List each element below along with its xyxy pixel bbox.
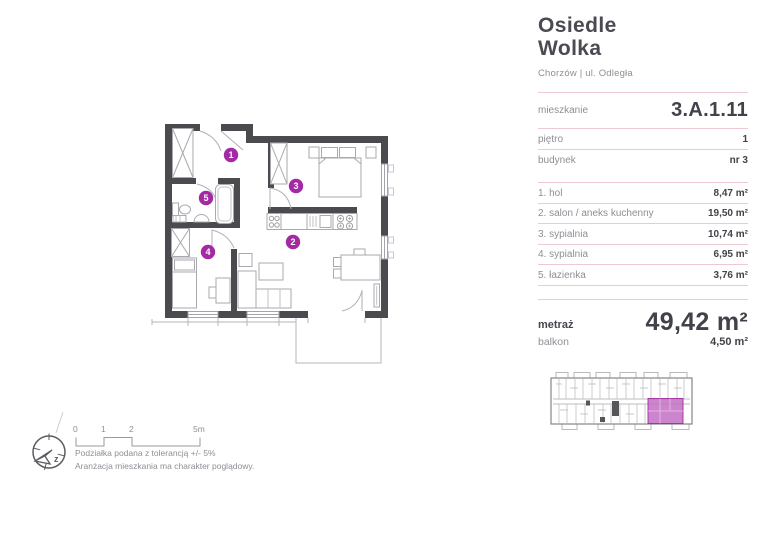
svg-text:4: 4 — [205, 247, 210, 257]
toilet — [173, 203, 179, 216]
building-label: budynek — [538, 155, 576, 166]
summary-divider — [538, 299, 748, 300]
room-row: 1. hol 8,47 m² — [538, 182, 748, 203]
detail-row-apartment: mieszkanie 3.A.1.11 — [538, 92, 748, 128]
balcony-value: 4,50 m² — [710, 336, 748, 348]
apartment-number: 3.A.1.11 — [671, 99, 748, 122]
plan-notes: Podziałka podana z tolerancją +/- 5% Ara… — [75, 447, 254, 473]
balcony — [152, 318, 381, 363]
note-tolerance: Podziałka podana z tolerancją +/- 5% — [75, 447, 254, 460]
tv-unit — [239, 254, 252, 267]
detail-row-floor: piętro 1 — [538, 128, 748, 149]
room-marker-1: 1 — [224, 148, 238, 162]
coffee-table — [259, 263, 283, 280]
svg-text:z: z — [54, 454, 59, 464]
floor-label: piętro — [538, 134, 563, 145]
scale-5m: 5m — [193, 424, 205, 434]
floorplan-page: 1 2 3 4 5 — [0, 0, 768, 539]
project-title: Osiedle Wolka — [538, 14, 748, 60]
room-marker-2: 2 — [286, 235, 300, 249]
room-label: 3. sypialnia — [538, 229, 588, 240]
detail-row-building: budynek nr 3 — [538, 149, 748, 170]
project-address: Chorzów | ul. Odległa — [538, 68, 748, 79]
total-area-label: metraż — [538, 319, 573, 335]
room-label: 4. sypialnia — [538, 249, 588, 260]
compass-icon: z — [33, 412, 65, 470]
room-label: 2. salon / aneks kuchenny — [538, 208, 654, 219]
window-sills — [389, 165, 394, 258]
minimap-highlighted-unit — [648, 399, 683, 424]
room-marker-3: 3 — [289, 179, 303, 193]
room-marker-4: 4 — [201, 245, 215, 259]
note-arrangement: Aranżacja mieszkania ma charakter pogląd… — [75, 460, 254, 473]
total-area-value: 49,42 m² — [646, 309, 748, 335]
info-panel: Osiedle Wolka Chorzów | ul. Odległa mies… — [538, 14, 748, 348]
svg-text:3: 3 — [293, 181, 298, 191]
apartment-details: mieszkanie 3.A.1.11 piętro 1 budynek nr … — [538, 92, 748, 170]
building-value: nr 3 — [730, 155, 748, 166]
room-markers: 1 2 3 4 5 — [199, 148, 303, 259]
rooms-table: 1. hol 8,47 m² 2. salon / aneks kuchenny… — [538, 182, 748, 286]
floor-value: 1 — [742, 134, 748, 145]
double-bed — [319, 158, 361, 197]
svg-text:5: 5 — [203, 193, 208, 203]
nightstand — [309, 147, 319, 158]
area-summary: metraż 49,42 m² balkon 4,50 m² — [538, 309, 748, 348]
room-row: 5. łazienka 3,76 m² — [538, 264, 748, 286]
room-area: 3,76 m² — [714, 270, 748, 281]
room-row: 4. sypialnia 6,95 m² — [538, 244, 748, 265]
kitchen-sink — [320, 216, 331, 228]
apartment-label: mieszkanie — [538, 105, 588, 116]
svg-text:1: 1 — [228, 150, 233, 160]
balcony-label: balkon — [538, 336, 569, 348]
building-minimap — [551, 373, 692, 430]
scale-bar — [76, 438, 200, 447]
dining-table — [341, 255, 380, 280]
furniture — [172, 129, 381, 309]
room-row: 3. sypialnia 10,74 m² — [538, 223, 748, 244]
room-area: 19,50 m² — [708, 208, 748, 219]
room-area: 8,47 m² — [714, 188, 748, 199]
scale-2: 2 — [129, 424, 134, 434]
sofa — [238, 271, 256, 308]
room-marker-5: 5 — [199, 191, 213, 205]
room-label: 5. łazienka — [538, 270, 586, 281]
room-area: 6,95 m² — [714, 249, 748, 260]
scale-0: 0 — [73, 424, 78, 434]
nightstand — [366, 147, 376, 158]
svg-text:2: 2 — [290, 237, 295, 247]
floor-plan: 1 2 3 4 5 — [152, 124, 394, 363]
room-row: 2. salon / aneks kuchenny 19,50 m² — [538, 203, 748, 224]
sink — [194, 215, 209, 222]
desk — [216, 278, 230, 303]
room-label: 1. hol — [538, 188, 562, 199]
room-area: 10,74 m² — [708, 229, 748, 240]
scale-1: 1 — [101, 424, 106, 434]
